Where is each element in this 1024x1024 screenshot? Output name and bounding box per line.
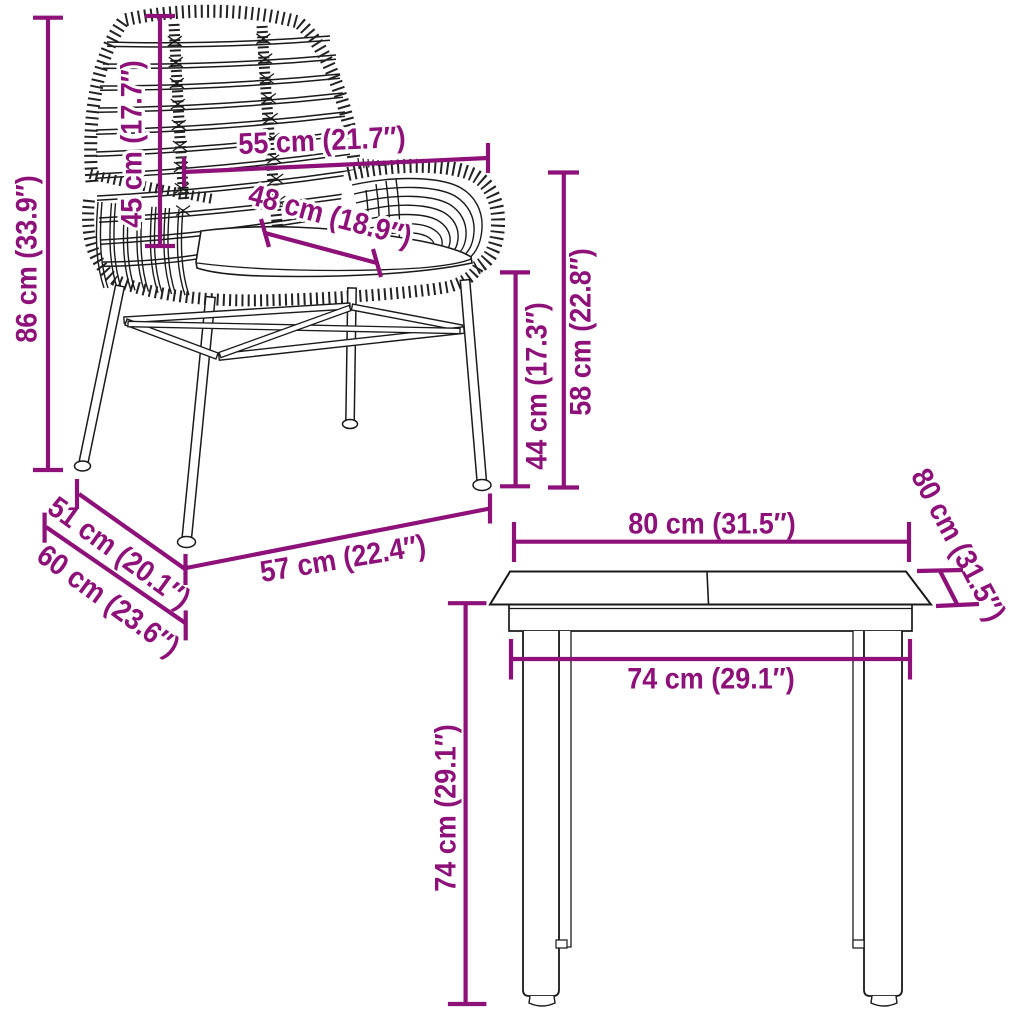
svg-text:74 cm (29.1″): 74 cm (29.1″) bbox=[429, 724, 463, 891]
svg-text:45 cm (17.7″): 45 cm (17.7″) bbox=[115, 60, 149, 227]
svg-text:44 cm (17.3″): 44 cm (17.3″) bbox=[520, 302, 554, 469]
svg-text:55 cm (21.7″): 55 cm (21.7″) bbox=[238, 121, 407, 162]
svg-text:58 cm (22.8″): 58 cm (22.8″) bbox=[564, 248, 598, 415]
svg-text:86 cm (33.9″): 86 cm (33.9″) bbox=[10, 175, 44, 342]
svg-text:80 cm (31.5″): 80 cm (31.5″) bbox=[628, 507, 795, 541]
svg-text:74 cm (29.1″): 74 cm (29.1″) bbox=[627, 662, 794, 696]
